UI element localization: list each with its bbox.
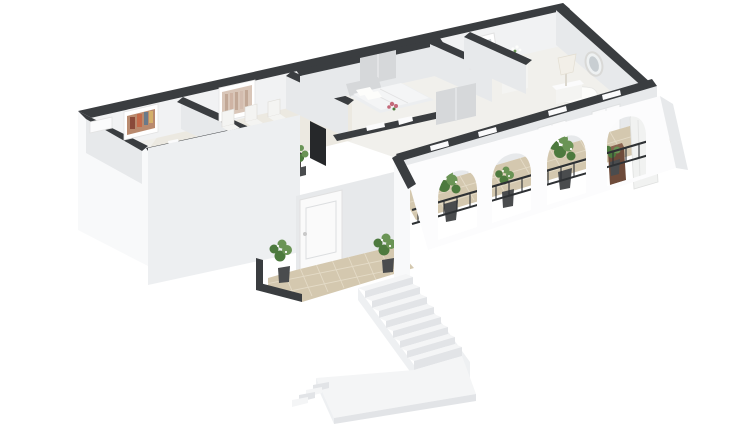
floorplan-render <box>0 0 750 425</box>
potted-plant <box>270 240 293 284</box>
stair-landing <box>316 356 476 424</box>
entry-door <box>300 190 342 272</box>
stair-upper-flight <box>358 274 462 370</box>
porch-threshold-trim <box>256 258 263 290</box>
floorplan-svg <box>0 0 750 425</box>
